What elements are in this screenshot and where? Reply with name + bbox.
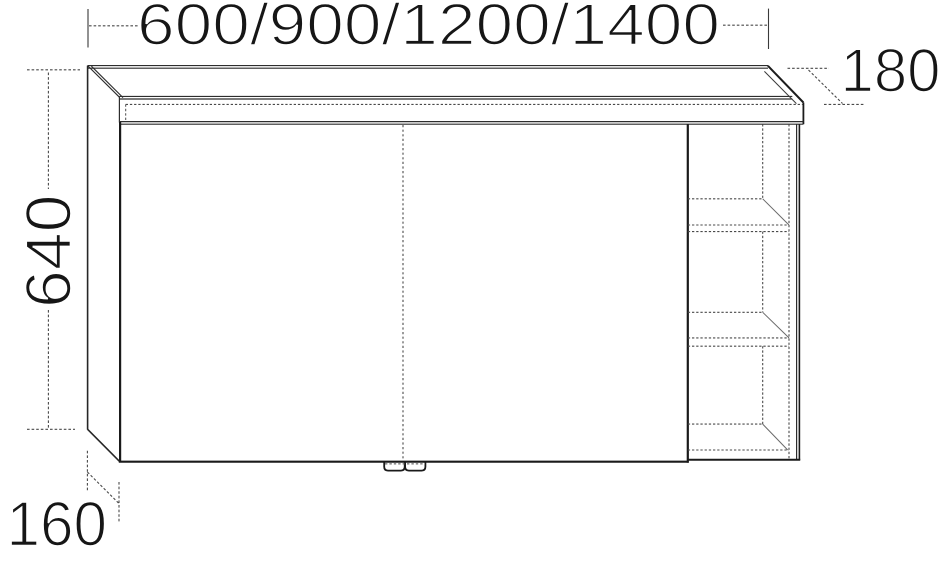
svg-text:600/900/1200/1400: 600/900/1200/1400: [137, 0, 720, 58]
svg-text:160: 160: [7, 490, 108, 560]
svg-text:180: 180: [841, 37, 941, 105]
svg-text:640: 640: [13, 195, 85, 309]
